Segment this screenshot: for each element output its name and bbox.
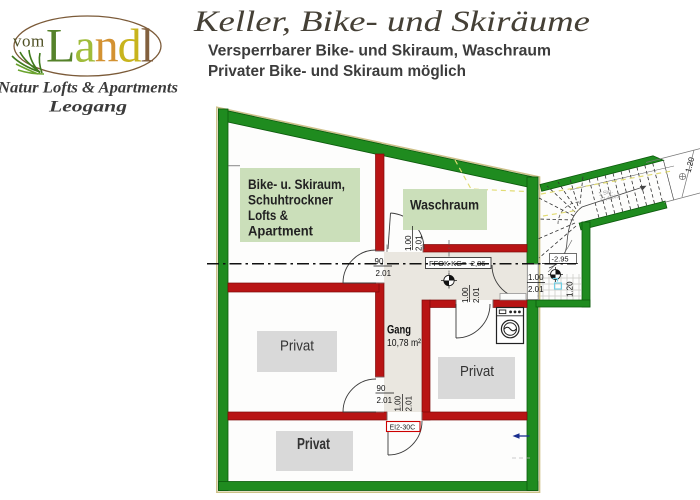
svg-text:2.01: 2.01 <box>472 287 481 303</box>
svg-text:1.00: 1.00 <box>404 235 413 251</box>
svg-text:90: 90 <box>377 384 386 393</box>
svg-text:1.00: 1.00 <box>528 273 544 282</box>
svg-text:Versperrbarer Bike- und Skirau: Versperrbarer Bike- und Skiraum, Waschra… <box>208 43 551 60</box>
svg-text:Privater Bike- und Skiraum mög: Privater Bike- und Skiraum möglich <box>208 63 466 80</box>
svg-text:2.01: 2.01 <box>528 285 544 294</box>
svg-text:2.01: 2.01 <box>415 235 424 251</box>
svg-text:Privat: Privat <box>297 436 330 453</box>
svg-text:Privat: Privat <box>460 363 495 380</box>
svg-text:2.01: 2.01 <box>376 269 392 278</box>
svg-text:90: 90 <box>375 257 384 266</box>
svg-text:EI2-30C: EI2-30C <box>390 425 416 432</box>
svg-text:2.01: 2.01 <box>405 395 414 411</box>
svg-text:1.20: 1.20 <box>566 281 575 297</box>
svg-text:Lofts &: Lofts & <box>248 208 288 223</box>
svg-text:Privat: Privat <box>280 338 315 355</box>
svg-text:Natur Lofts & Apartments: Natur Lofts & Apartments <box>0 80 178 97</box>
svg-text:Apartment: Apartment <box>248 224 313 239</box>
svg-text:Landl: Landl <box>46 20 154 73</box>
svg-text:1.00: 1.00 <box>461 287 470 303</box>
svg-text:Schuhtrockner: Schuhtrockner <box>248 193 334 208</box>
svg-text:Bike- u. Skiraum,: Bike- u. Skiraum, <box>248 177 345 192</box>
svg-text:vom: vom <box>13 32 45 51</box>
svg-text:Keller, Bike- und Skiräume: Keller, Bike- und Skiräume <box>193 5 590 38</box>
svg-text:Leogang: Leogang <box>48 99 127 116</box>
svg-text:2.01: 2.01 <box>377 396 393 405</box>
svg-text:Waschraum: Waschraum <box>410 198 479 213</box>
svg-text:-2.95: -2.95 <box>552 255 569 264</box>
svg-text:1.20: 1.20 <box>684 156 697 174</box>
svg-text:1.00: 1.00 <box>394 395 403 411</box>
svg-text:10,78 m²: 10,78 m² <box>387 338 422 349</box>
svg-text:Gang: Gang <box>387 325 411 337</box>
